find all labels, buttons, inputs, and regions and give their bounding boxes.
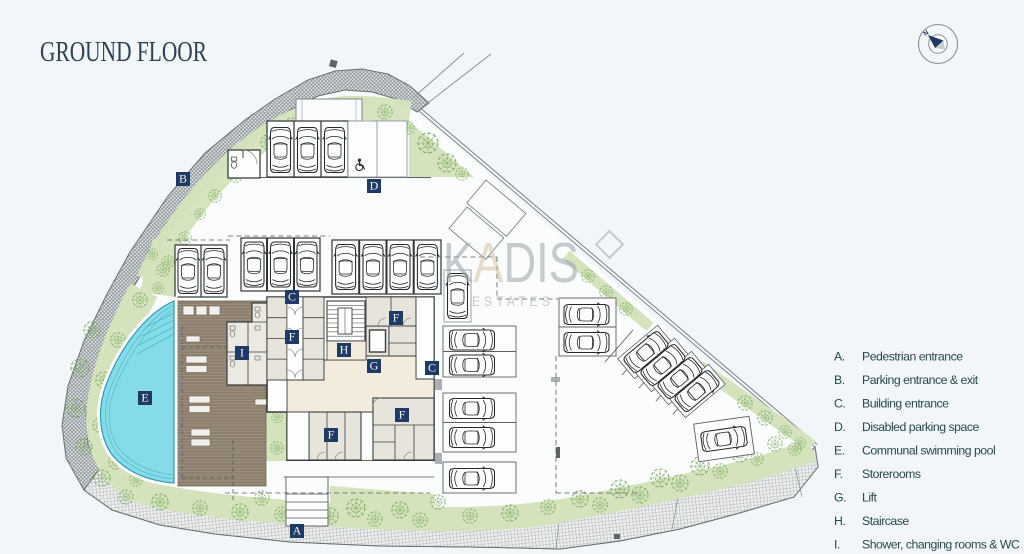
svg-text:B: B — [179, 172, 187, 186]
svg-text:G: G — [370, 359, 379, 373]
svg-text:C: C — [288, 290, 296, 304]
svg-text:F: F — [393, 311, 400, 325]
svg-text:D.: D. — [834, 420, 845, 434]
svg-text:H.: H. — [834, 514, 845, 528]
svg-text:B.: B. — [834, 373, 845, 387]
svg-text:Lift: Lift — [862, 491, 877, 505]
svg-text:Pedestrian entrance: Pedestrian entrance — [862, 350, 963, 364]
svg-text:KADIS: KADIS — [443, 231, 579, 295]
svg-text:E: E — [141, 391, 148, 405]
svg-text:Storerooms: Storerooms — [862, 467, 921, 481]
svg-text:F: F — [399, 408, 406, 422]
svg-text:D: D — [370, 179, 379, 193]
svg-text:F: F — [289, 330, 296, 344]
svg-text:Building entrance: Building entrance — [862, 397, 949, 411]
svg-text:F.: F. — [834, 467, 843, 481]
svg-text:Disabled parking space: Disabled parking space — [862, 420, 979, 434]
svg-text:Communal swimming pool: Communal swimming pool — [862, 444, 995, 458]
svg-text:I: I — [240, 346, 244, 360]
svg-text:Parking entrance & exit: Parking entrance & exit — [862, 373, 979, 387]
svg-text:F: F — [328, 428, 335, 442]
svg-text:GROUND FLOOR: GROUND FLOOR — [40, 36, 207, 68]
svg-text:Shower, changing rooms & WC: Shower, changing rooms & WC — [862, 538, 1020, 552]
svg-text:A: A — [293, 524, 302, 538]
svg-text:Staircase: Staircase — [862, 514, 909, 528]
svg-text:C: C — [428, 361, 436, 375]
svg-text:E.: E. — [834, 444, 845, 458]
svg-text:G.: G. — [834, 491, 846, 505]
svg-text:A.: A. — [834, 350, 845, 364]
svg-text:H: H — [340, 343, 349, 357]
svg-text:C.: C. — [834, 397, 845, 411]
svg-text:I.: I. — [834, 538, 840, 552]
svg-text:ESTATES: ESTATES — [472, 293, 554, 309]
